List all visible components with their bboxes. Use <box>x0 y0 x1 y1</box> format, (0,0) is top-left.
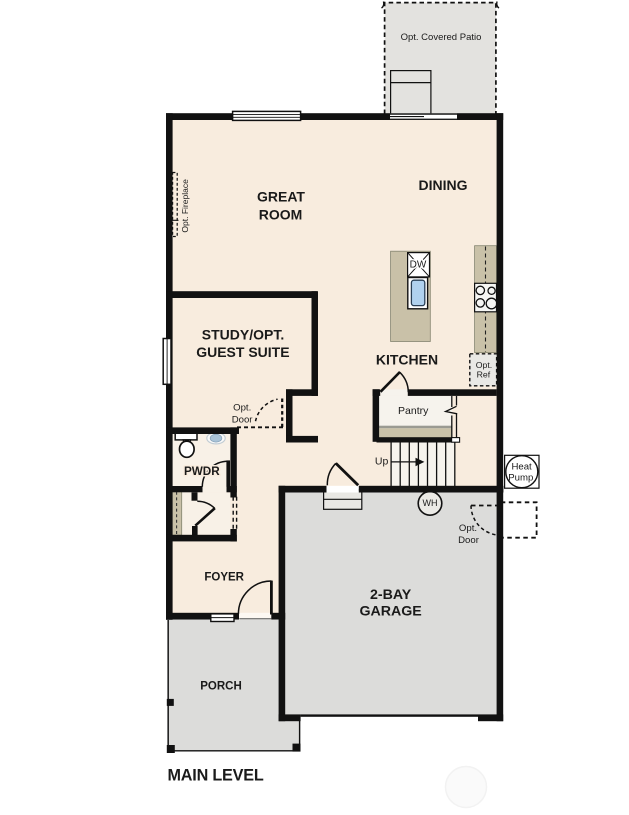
svg-text:Opt. Fireplace: Opt. Fireplace <box>180 179 190 233</box>
svg-text:Up: Up <box>375 456 389 468</box>
svg-text:DINING: DINING <box>419 177 468 193</box>
svg-text:GUEST SUITE: GUEST SUITE <box>196 344 289 360</box>
svg-text:Opt. Covered Patio: Opt. Covered Patio <box>401 32 482 43</box>
svg-text:FOYER: FOYER <box>204 571 244 583</box>
svg-text:GREAT: GREAT <box>257 188 305 204</box>
svg-text:Opt.: Opt. <box>459 523 477 534</box>
svg-text:Heat: Heat <box>511 462 532 473</box>
svg-text:STUDY/OPT.: STUDY/OPT. <box>202 327 284 343</box>
svg-text:DW: DW <box>410 260 427 271</box>
svg-text:MAIN LEVEL: MAIN LEVEL <box>168 767 264 785</box>
svg-text:Pump: Pump <box>508 473 533 484</box>
svg-text:KITCHEN: KITCHEN <box>376 351 438 367</box>
svg-text:Door: Door <box>458 535 480 546</box>
svg-text:2-BAY: 2-BAY <box>370 587 412 603</box>
svg-text:Ref: Ref <box>477 370 491 380</box>
svg-text:WH: WH <box>423 498 438 508</box>
svg-text:ROOM: ROOM <box>259 207 303 223</box>
svg-text:Pantry: Pantry <box>398 405 429 417</box>
svg-text:Door: Door <box>232 415 254 426</box>
svg-text:GARAGE: GARAGE <box>359 603 421 619</box>
svg-text:PWDR: PWDR <box>184 465 220 478</box>
svg-text:PORCH: PORCH <box>200 680 242 692</box>
svg-text:Opt.: Opt. <box>233 403 251 414</box>
